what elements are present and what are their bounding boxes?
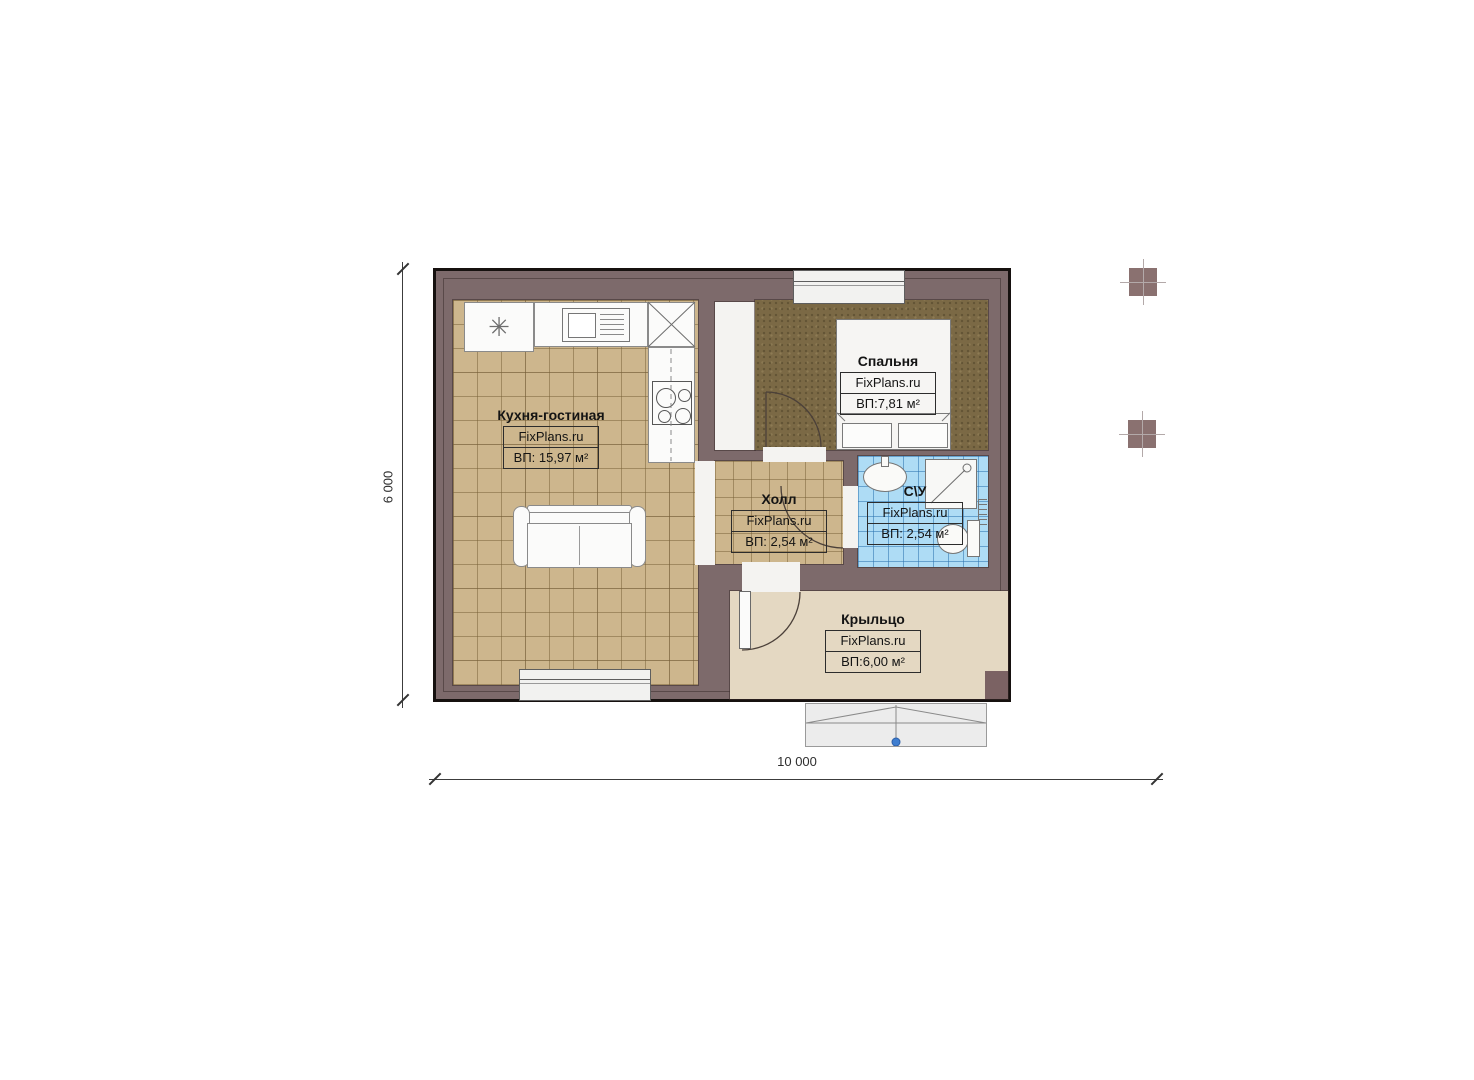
area-text: ВП: 2,54 м² bbox=[868, 523, 962, 544]
width-dimension-label: 10 000 bbox=[777, 754, 817, 769]
entrance-door-opening bbox=[742, 562, 800, 592]
room-label-kitchen: Кухня-гостиная FixPlans.ru ВП: 15,97 м² bbox=[476, 407, 626, 469]
room-title: Кухня-гостиная bbox=[476, 407, 626, 423]
height-dimension-label: 6 000 bbox=[381, 471, 396, 504]
room-label-bedroom: Спальня FixPlans.ru ВП:7,81 м² bbox=[813, 353, 963, 415]
bedroom-door-opening bbox=[763, 447, 826, 462]
porch-column bbox=[985, 671, 1008, 699]
entrance-door-leaf bbox=[739, 591, 751, 649]
brand-text: FixPlans.ru bbox=[841, 373, 935, 393]
pillow bbox=[842, 423, 892, 448]
room-label-hall: Холл FixPlans.ru ВП: 2,54 м² bbox=[704, 491, 854, 553]
room-label-porch: Крыльцо FixPlans.ru ВП:6,00 м² bbox=[798, 611, 948, 673]
sink-icon bbox=[562, 308, 630, 342]
asterisk-icon: ✳ bbox=[488, 314, 510, 340]
bedroom-window bbox=[793, 270, 905, 304]
brand-text: FixPlans.ru bbox=[868, 503, 962, 523]
width-dimension-line bbox=[429, 779, 1163, 780]
brand-text: FixPlans.ru bbox=[504, 427, 598, 447]
step-marker-dot bbox=[892, 738, 900, 746]
room-title: Крыльцо bbox=[798, 611, 948, 627]
canopy-column-top bbox=[1129, 268, 1157, 296]
room-info-box: FixPlans.ru ВП: 2,54 м² bbox=[731, 510, 827, 553]
room-info-box: FixPlans.ru ВП:7,81 м² bbox=[840, 372, 936, 415]
room-label-bathroom: С\У FixPlans.ru ВП: 2,54 м² bbox=[840, 483, 990, 545]
floor-plan: ✳ bbox=[433, 268, 1011, 702]
kitchen-counter-sink bbox=[534, 302, 648, 347]
sofa bbox=[513, 504, 646, 568]
dimension-tick bbox=[397, 263, 410, 276]
room-info-box: FixPlans.ru ВП: 2,54 м² bbox=[867, 502, 963, 545]
area-text: ВП:7,81 м² bbox=[841, 393, 935, 414]
area-text: ВП: 15,97 м² bbox=[504, 447, 598, 468]
room-info-box: FixPlans.ru ВП: 15,97 м² bbox=[503, 426, 599, 469]
pillow bbox=[898, 423, 948, 448]
bedroom-entry-strip bbox=[715, 302, 755, 450]
room-title: С\У bbox=[840, 483, 990, 499]
room-title: Холл bbox=[704, 491, 854, 507]
dimension-tick bbox=[397, 694, 410, 707]
steps-lines bbox=[806, 704, 986, 746]
canopy-column-bottom bbox=[1128, 420, 1156, 448]
height-dimension-line bbox=[402, 262, 403, 708]
bathroom-faucet bbox=[881, 456, 889, 467]
room-info-box: FixPlans.ru ВП:6,00 м² bbox=[825, 630, 921, 673]
area-text: ВП: 2,54 м² bbox=[732, 531, 826, 552]
area-text: ВП:6,00 м² bbox=[826, 651, 920, 672]
page: { "plan_title": "Floor plan", "rooms": [… bbox=[0, 0, 1474, 1080]
brand-text: FixPlans.ru bbox=[826, 631, 920, 651]
room-title: Спальня bbox=[813, 353, 963, 369]
kitchen-corner-unit: ✳ bbox=[464, 302, 534, 352]
porch-steps bbox=[805, 703, 987, 747]
stove-icon bbox=[652, 381, 692, 425]
kitchen-window bbox=[519, 669, 651, 701]
kitchen-corner-cabinet bbox=[648, 302, 695, 347]
brand-text: FixPlans.ru bbox=[732, 511, 826, 531]
